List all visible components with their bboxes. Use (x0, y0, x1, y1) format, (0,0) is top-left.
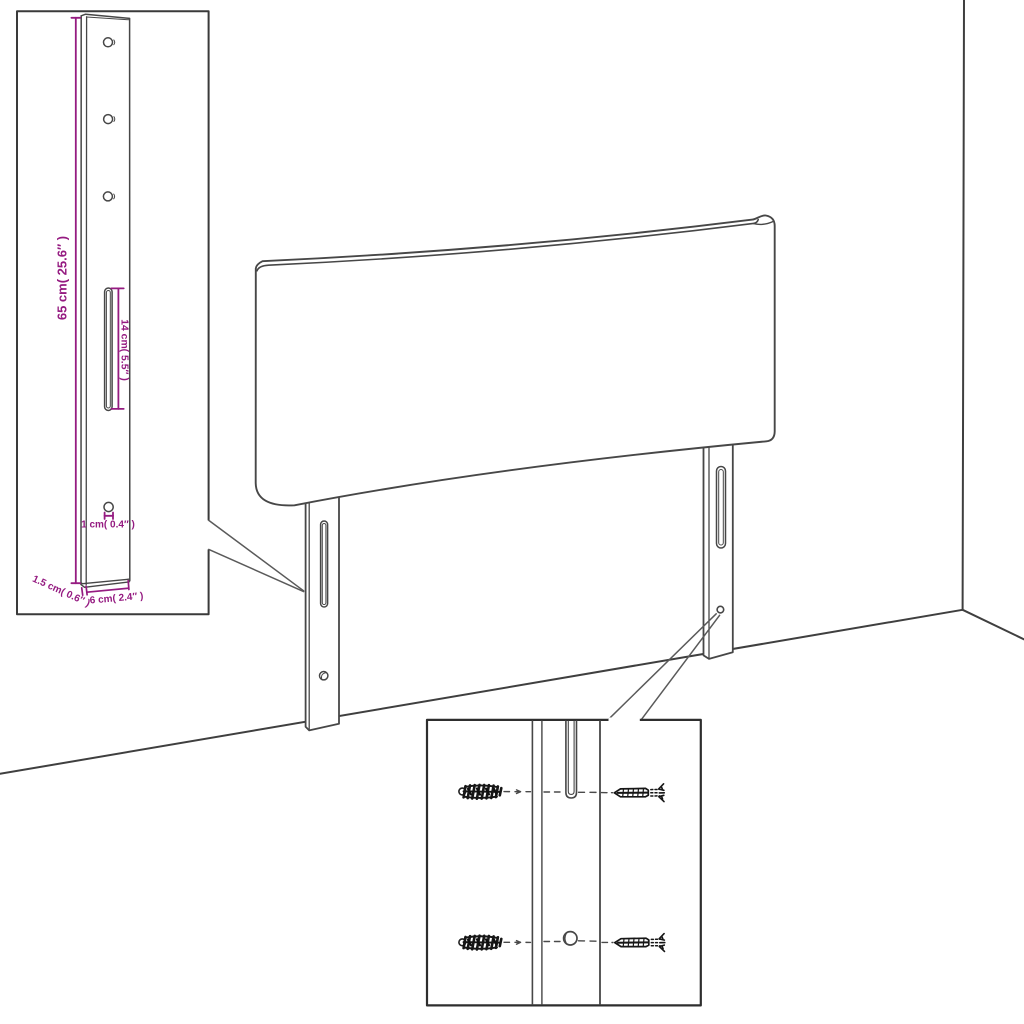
svg-text:1 cm( 0.4″ ): 1 cm( 0.4″ ) (81, 520, 135, 531)
svg-text:65 cm( 25.6″ ): 65 cm( 25.6″ ) (55, 236, 70, 320)
svg-text:14 cm( 5.5″ ): 14 cm( 5.5″ ) (119, 319, 130, 381)
